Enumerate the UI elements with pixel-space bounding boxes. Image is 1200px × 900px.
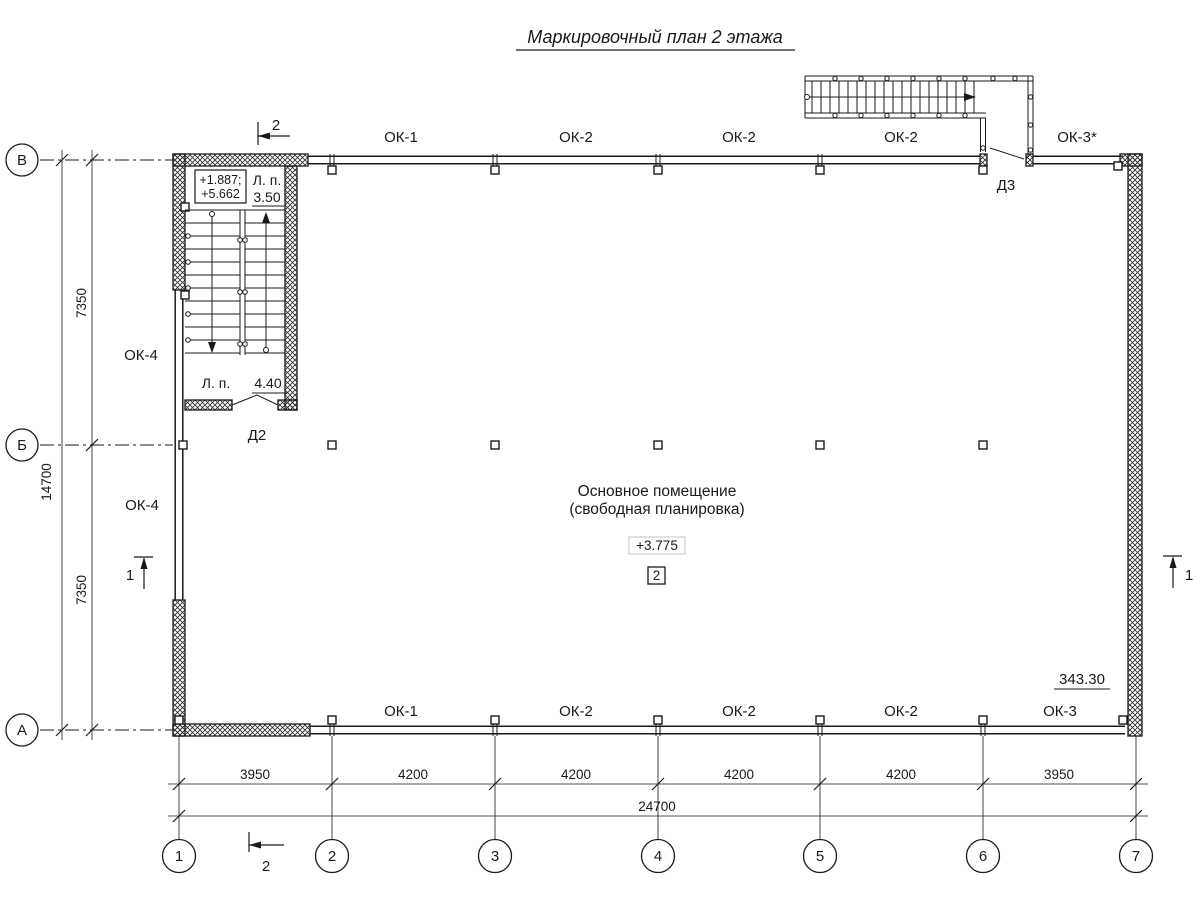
top-window-band-2 <box>1033 156 1123 164</box>
rail-post <box>186 286 191 291</box>
axis-label: 5 <box>816 848 824 865</box>
stair-down-arrowhead <box>208 342 216 353</box>
door-d3-hinge <box>981 146 985 150</box>
stair-right-flight-treads <box>245 210 285 353</box>
window-label-bottom: ОК-2 <box>884 703 918 720</box>
rail-post <box>238 238 243 243</box>
rail-post <box>238 290 243 295</box>
stair-divider <box>240 210 245 355</box>
stair-top-stringer <box>805 76 1033 81</box>
window-label-top: ОК-2 <box>559 129 593 146</box>
left-dim-total: 14700 <box>39 463 54 501</box>
axis-label: В <box>17 152 27 169</box>
axis-label: Б <box>17 437 27 454</box>
window-label-top: ОК-3* <box>1057 129 1097 146</box>
column-marker <box>979 441 987 449</box>
column-marker <box>816 716 824 724</box>
top-window-band-1 <box>308 156 980 164</box>
bottom-dim-segment: 4200 <box>561 767 591 782</box>
rail-post <box>1013 76 1017 80</box>
external-stair: Д3 <box>805 76 1034 194</box>
rail-post <box>911 113 915 117</box>
column-marker <box>491 166 499 174</box>
door-d2-opening <box>232 395 278 405</box>
axis-label: 6 <box>979 848 987 865</box>
window-label-bottom: ОК-2 <box>722 703 756 720</box>
column-marker <box>181 291 189 299</box>
rail-post <box>963 113 967 117</box>
section1-right-arrowhead <box>1170 556 1177 568</box>
stairwell-bottom-wall-left <box>185 400 232 410</box>
floor-plan-canvas: Маркировочный план 2 этажа <box>0 0 1200 900</box>
landing-upper-label: Л. п. <box>253 172 281 188</box>
bottom-dim-total: 24700 <box>638 799 676 814</box>
stairwell: +1.887; +5.662 Л. п. 3.50 Л. п. 4.40 Д2 <box>185 166 297 444</box>
column-marker <box>979 716 987 724</box>
window-label-bottom: ОК-1 <box>384 703 418 720</box>
window-label-bottom: ОК-3 <box>1043 703 1077 720</box>
left-dim-segment: 7350 <box>74 288 89 318</box>
bottom-dim-segment: 3950 <box>240 767 270 782</box>
window-label-top: ОК-2 <box>722 129 756 146</box>
column-marker <box>328 441 336 449</box>
stair-elevation-line2: +5.662 <box>201 187 240 201</box>
rail-post <box>243 342 248 347</box>
axis-label: 3 <box>491 848 499 865</box>
rail-post <box>937 76 941 80</box>
rail-post <box>991 76 995 80</box>
column-marker <box>328 166 336 174</box>
bottom-window-band <box>310 726 1125 734</box>
landing-lower-label: Л. п. <box>202 375 230 391</box>
rail-post <box>911 76 915 80</box>
column-marker <box>1119 716 1127 724</box>
rail-post <box>1028 95 1032 99</box>
column-marker <box>328 716 336 724</box>
bottom-dim-segment: 4200 <box>886 767 916 782</box>
rail-post <box>1028 123 1032 127</box>
window-labels: ОК-1 ОК-2 ОК-2 ОК-2 ОК-3* ОК-1 ОК-2 ОК-2… <box>124 129 1097 720</box>
rail-post <box>937 113 941 117</box>
rail-post <box>963 76 967 80</box>
landing-right-edge <box>1028 76 1033 157</box>
left-wall-top <box>173 154 185 290</box>
axis-label: 4 <box>654 848 662 865</box>
rail-post <box>238 342 243 347</box>
rail-post <box>833 76 837 80</box>
section2-bottom-arrowhead <box>249 842 261 849</box>
interior-columns <box>328 441 987 449</box>
window-label-bottom: ОК-2 <box>559 703 593 720</box>
rail-post <box>1028 148 1032 152</box>
landing-lower-value: 4.40 <box>254 375 281 391</box>
door-d3-left-jamb <box>980 154 987 166</box>
room-name-line2: (свободная планировка) <box>569 501 744 518</box>
column-marker <box>979 166 987 174</box>
axis-extension-lines <box>179 736 1136 840</box>
left-axis-grid: В Б А 7350 7350 14700 <box>6 144 173 746</box>
rail-post <box>243 238 248 243</box>
rail-post <box>243 290 248 295</box>
rail-post <box>885 76 889 80</box>
room-number: 2 <box>653 568 661 583</box>
stair-direction-start-post <box>805 95 810 100</box>
stairwell-right-wall <box>285 166 297 410</box>
floor-plan-drawing: Маркировочный план 2 этажа <box>0 0 1200 900</box>
door-d3-right-jamb <box>1026 154 1033 166</box>
column-marker <box>175 716 183 724</box>
right-wall <box>1128 154 1142 736</box>
column-marker <box>816 441 824 449</box>
column-marker <box>1114 162 1122 170</box>
room-area: 343.30 <box>1059 671 1105 688</box>
stairwell-bottom-wall-right <box>278 400 297 410</box>
bottom-wall-hatched-left <box>173 724 310 736</box>
top-wall-hatched-left <box>173 154 308 166</box>
stair-arrow-start-post <box>210 212 215 217</box>
axis-label: 7 <box>1132 848 1140 865</box>
rail-post <box>186 338 191 343</box>
room-elevation: +3.775 <box>636 538 678 553</box>
stair-arrow-start-post <box>264 348 269 353</box>
rail-post <box>833 113 837 117</box>
rail-post <box>885 113 889 117</box>
column-marker <box>654 716 662 724</box>
axis-label: 2 <box>328 848 336 865</box>
axis-label: 1 <box>175 848 183 865</box>
section1-left-label: 1 <box>126 567 134 584</box>
door-d3-label: Д3 <box>997 177 1016 194</box>
room-name-line1: Основное помещение <box>578 483 737 500</box>
bottom-axis-grid: 3950 4200 4200 4200 4200 3950 24700 1 2 … <box>163 736 1153 873</box>
drawing-title: Маркировочный план 2 этажа <box>516 27 795 50</box>
rail-post <box>859 76 863 80</box>
column-marker <box>491 441 499 449</box>
bottom-dim-segment: 4200 <box>724 767 754 782</box>
section1-left-arrowhead <box>141 557 148 569</box>
column-marker <box>491 716 499 724</box>
rail-post <box>186 312 191 317</box>
door-d3-leaf <box>990 148 1024 159</box>
stair-up-arrowhead <box>262 212 270 223</box>
section2-top-label: 2 <box>272 117 280 134</box>
section2-top-arrowhead <box>258 133 270 140</box>
window-label-top: ОК-2 <box>884 129 918 146</box>
room-labels: Основное помещение (свободная планировка… <box>569 483 1110 689</box>
column-marker <box>816 166 824 174</box>
window-label-top: ОК-1 <box>384 129 418 146</box>
rail-post <box>186 234 191 239</box>
left-dim-segment: 7350 <box>74 575 89 605</box>
column-marker <box>654 166 662 174</box>
rail-post <box>859 113 863 117</box>
bottom-dim-segment: 3950 <box>1044 767 1074 782</box>
landing-upper-value: 3.50 <box>253 189 280 205</box>
window-label-left: ОК-4 <box>125 497 159 514</box>
section2-bottom-label: 2 <box>262 858 270 875</box>
rail-post <box>186 260 191 265</box>
stair-elevation-line1: +1.887; <box>199 173 241 187</box>
title-text: Маркировочный план 2 этажа <box>527 27 782 47</box>
bottom-dim-segment: 4200 <box>398 767 428 782</box>
window-label-left: ОК-4 <box>124 347 158 364</box>
stair-bottom-stringer <box>805 113 986 118</box>
column-marker <box>654 441 662 449</box>
section1-right-label: 1 <box>1185 567 1193 584</box>
axis-label: А <box>17 722 27 739</box>
column-marker <box>179 441 187 449</box>
door-d2-label: Д2 <box>248 427 267 444</box>
